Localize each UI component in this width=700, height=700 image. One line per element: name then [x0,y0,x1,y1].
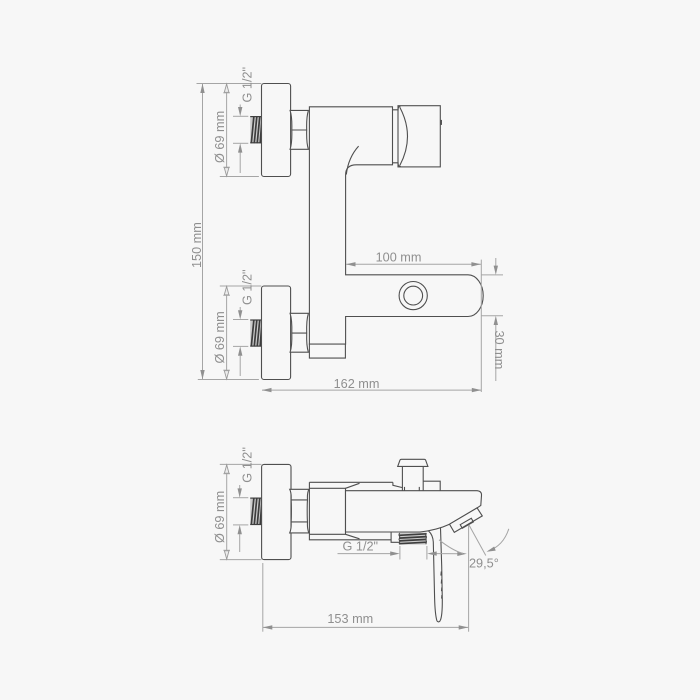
svg-text:153 mm: 153 mm [327,612,373,626]
svg-text:162 mm: 162 mm [334,377,380,391]
svg-text:100 mm: 100 mm [376,251,422,265]
svg-text:30 mm: 30 mm [492,331,506,370]
svg-text:G 1/2": G 1/2" [240,67,254,103]
svg-text:150 mm: 150 mm [190,222,204,268]
svg-text:Ø 69 mm: Ø 69 mm [213,111,227,163]
svg-text:Ø 69 mm: Ø 69 mm [213,311,227,363]
svg-text:Ø 69 mm: Ø 69 mm [213,491,227,543]
svg-text:G 1/2": G 1/2" [343,539,379,553]
svg-text:G 1/2": G 1/2" [241,447,255,483]
svg-text:29,5°: 29,5° [469,557,499,571]
svg-text:G 1/2": G 1/2" [240,269,254,305]
